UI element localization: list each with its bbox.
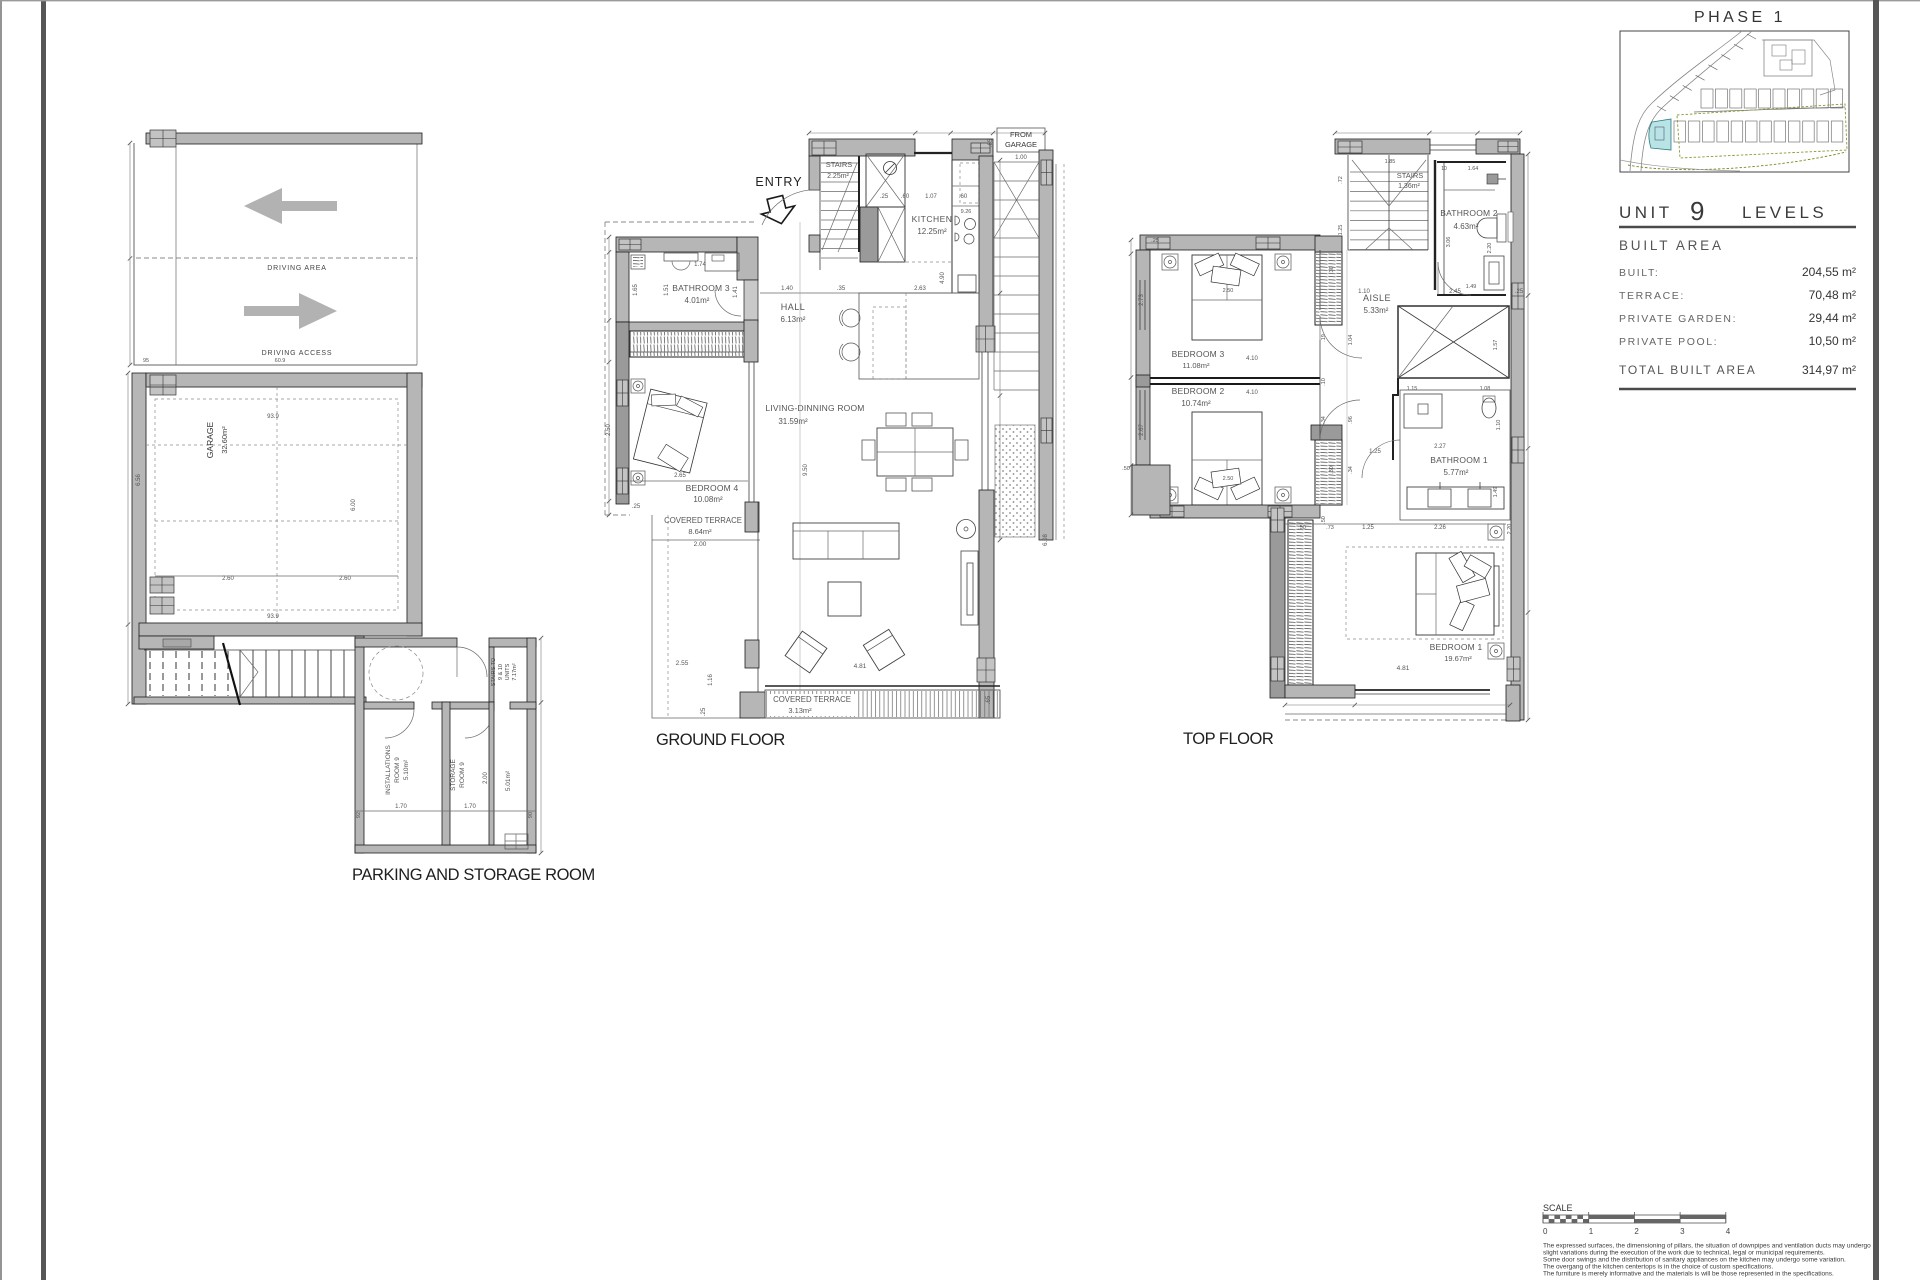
- svg-text:The overgang of the kitchen ce: The overgang of the kitchen centertops i…: [1543, 1264, 1773, 1271]
- svg-text:STAIRS: STAIRS: [826, 160, 853, 169]
- svg-text:.25: .25: [632, 504, 641, 510]
- svg-text:.34: .34: [1348, 466, 1354, 474]
- svg-text:BEDROOM 2: BEDROOM 2: [1172, 386, 1225, 396]
- svg-text:2.00: 2.00: [694, 541, 707, 548]
- svg-text:LIVING-DINNING ROOM: LIVING-DINNING ROOM: [765, 403, 864, 413]
- svg-text:1.41: 1.41: [733, 286, 739, 298]
- svg-text:314,97 m²: 314,97 m²: [1802, 363, 1856, 377]
- svg-text:1.85: 1.85: [1385, 159, 1396, 165]
- svg-text:2.60: 2.60: [339, 576, 351, 582]
- svg-text:2.65: 2.65: [674, 473, 686, 479]
- svg-text:90: 90: [528, 812, 534, 818]
- svg-text:PHASE 1: PHASE 1: [1694, 9, 1786, 26]
- svg-text:Some door swings and the distr: Some door swings and the distribution of…: [1543, 1257, 1846, 1264]
- svg-text:COVERED TERRACE: COVERED TERRACE: [773, 695, 851, 704]
- svg-text:.30: .30: [1329, 466, 1335, 474]
- svg-text:BEDROOM 1: BEDROOM 1: [1430, 642, 1483, 652]
- svg-text:1.04: 1.04: [1348, 335, 1354, 346]
- svg-text:8.64m²: 8.64m²: [688, 527, 712, 536]
- svg-text:.65: .65: [986, 695, 992, 704]
- svg-text:.25: .25: [880, 194, 889, 200]
- svg-text:5.01m²: 5.01m²: [505, 770, 512, 791]
- svg-text:10.74m²: 10.74m²: [1181, 399, 1211, 408]
- svg-text:1.49: 1.49: [1466, 284, 1477, 290]
- svg-text:GARAGE: GARAGE: [1005, 140, 1037, 149]
- svg-text:3.06: 3.06: [1446, 237, 1452, 248]
- svg-text:1.25: 1.25: [1362, 525, 1374, 531]
- svg-text:.50: .50: [1321, 516, 1327, 524]
- svg-text:DRIVING ACCESS: DRIVING ACCESS: [262, 350, 333, 357]
- svg-text:2.50: 2.50: [1223, 288, 1234, 294]
- svg-text:1.00: 1.00: [1015, 155, 1027, 161]
- svg-text:BATHROOM 1: BATHROOM 1: [1430, 455, 1488, 465]
- svg-text:PRIVATE POOL:: PRIVATE POOL:: [1619, 336, 1718, 348]
- svg-text:31.59m²: 31.59m²: [778, 417, 808, 426]
- svg-text:The expressed surfaces, the di: The expressed surfaces, the dimensioning…: [1543, 1243, 1871, 1250]
- svg-text:93.9: 93.9: [267, 614, 279, 620]
- svg-text:0: 0: [1543, 1227, 1548, 1236]
- svg-text:92: 92: [356, 812, 362, 818]
- svg-text:29,44 m²: 29,44 m²: [1809, 311, 1856, 325]
- svg-text:2.27: 2.27: [1434, 444, 1446, 450]
- svg-text:6.00: 6.00: [351, 499, 357, 511]
- svg-text:2.25m²: 2.25m²: [827, 173, 849, 180]
- svg-text:ROOM 9: ROOM 9: [459, 762, 466, 788]
- svg-text:1.70: 1.70: [464, 804, 476, 810]
- svg-text:.60: .60: [959, 194, 968, 200]
- svg-text:9.26: 9.26: [961, 209, 972, 215]
- svg-text:1.16: 1.16: [708, 674, 714, 686]
- svg-text:2.73: 2.73: [1139, 294, 1145, 306]
- svg-text:BUILT:: BUILT:: [1619, 267, 1659, 279]
- svg-text:.30: .30: [1329, 266, 1335, 274]
- svg-text:6.13m²: 6.13m²: [781, 315, 806, 324]
- svg-text:2.63: 2.63: [914, 286, 926, 292]
- svg-text:6.56: 6.56: [136, 474, 142, 486]
- svg-text:1.08: 1.08: [1480, 386, 1491, 392]
- svg-text:95: 95: [143, 358, 149, 364]
- svg-text:2.50: 2.50: [1223, 476, 1234, 482]
- svg-text:4.63m²: 4.63m²: [1454, 222, 1479, 231]
- svg-text:The furniture is merely inform: The furniture is merely informative and …: [1543, 1271, 1834, 1278]
- svg-text:1.57: 1.57: [1493, 340, 1499, 351]
- svg-text:1.65: 1.65: [633, 284, 639, 296]
- svg-text:HALL: HALL: [781, 302, 806, 312]
- svg-text:TOTAL BUILT AREA: TOTAL BUILT AREA: [1619, 363, 1757, 377]
- svg-text:93.9: 93.9: [267, 414, 279, 420]
- svg-text:1.51: 1.51: [664, 284, 670, 296]
- svg-text:GROUND FLOOR: GROUND FLOOR: [656, 731, 785, 749]
- svg-text:4: 4: [1726, 1227, 1731, 1236]
- svg-text:1.10: 1.10: [1358, 289, 1370, 295]
- svg-text:1.07: 1.07: [925, 194, 937, 200]
- svg-text:10,50 m²: 10,50 m²: [1809, 334, 1856, 348]
- svg-text:TERRACE:: TERRACE:: [1619, 290, 1685, 302]
- svg-text:.65: .65: [988, 138, 994, 147]
- svg-text:KITCHEN: KITCHEN: [912, 214, 953, 224]
- svg-text:.35: .35: [837, 286, 846, 292]
- svg-text:2.20: 2.20: [1487, 243, 1493, 254]
- svg-text:.25: .25: [1515, 289, 1524, 295]
- svg-text:BATHROOM 2: BATHROOM 2: [1440, 208, 1498, 218]
- svg-text:3.13m²: 3.13m²: [788, 706, 812, 715]
- svg-text:204,55 m²: 204,55 m²: [1802, 265, 1856, 279]
- svg-text:4.01m²: 4.01m²: [685, 296, 710, 305]
- svg-text:2.60: 2.60: [222, 576, 234, 582]
- svg-text:TOP FLOOR: TOP FLOOR: [1183, 730, 1274, 748]
- svg-text:4.10: 4.10: [1246, 356, 1258, 362]
- svg-text:2.20: 2.20: [1507, 524, 1513, 535]
- svg-text:2.26: 2.26: [1434, 525, 1446, 531]
- svg-text:6.08: 6.08: [1043, 534, 1049, 546]
- svg-text:SCALE: SCALE: [1543, 1203, 1573, 1213]
- svg-text:3: 3: [1680, 1227, 1685, 1236]
- svg-text:LEVELS: LEVELS: [1742, 203, 1827, 222]
- svg-text:ROOM 9: ROOM 9: [394, 757, 401, 783]
- svg-text:1: 1: [1589, 1227, 1594, 1236]
- svg-text:BEDROOM 3: BEDROOM 3: [1172, 349, 1225, 359]
- svg-text:5.77m²: 5.77m²: [1444, 468, 1469, 477]
- svg-text:UNIT: UNIT: [1619, 203, 1673, 222]
- svg-text:4.81: 4.81: [1397, 665, 1410, 672]
- svg-text:1.40: 1.40: [781, 286, 793, 292]
- svg-text:.25: .25: [1151, 238, 1159, 244]
- svg-text:INSTALLATIONS: INSTALLATIONS: [385, 745, 392, 795]
- svg-text:.96: .96: [1348, 416, 1354, 424]
- svg-text:1.74: 1.74: [694, 262, 706, 268]
- svg-text:9 & 10: 9 & 10: [498, 664, 504, 680]
- svg-text:.50: .50: [1298, 525, 1306, 531]
- svg-text:BEDROOM 4: BEDROOM 4: [686, 483, 739, 493]
- svg-text:.25: .25: [701, 707, 707, 716]
- svg-text:UNITS: UNITS: [505, 663, 511, 680]
- svg-text:5.10m²: 5.10m²: [403, 759, 410, 780]
- svg-text:4.81: 4.81: [854, 663, 867, 670]
- svg-text:32.60m²: 32.60m²: [220, 426, 229, 454]
- svg-text:10.08m²: 10.08m²: [693, 495, 723, 504]
- svg-text:2.00: 2.00: [483, 772, 489, 784]
- svg-text:1.25: 1.25: [1338, 225, 1344, 236]
- svg-text:19.67m²: 19.67m²: [1444, 654, 1472, 663]
- svg-text:7.17m²: 7.17m²: [512, 663, 518, 680]
- svg-text:1.49: 1.49: [1493, 487, 1499, 498]
- svg-text:2: 2: [1634, 1227, 1639, 1236]
- svg-text:STAIRS: STAIRS: [1397, 171, 1424, 180]
- svg-text:BATHROOM 3: BATHROOM 3: [672, 283, 730, 293]
- svg-text:4.90: 4.90: [940, 272, 946, 284]
- svg-text:4.10: 4.10: [1246, 390, 1258, 396]
- svg-text:10: 10: [1441, 166, 1447, 172]
- svg-text:11.08m²: 11.08m²: [1183, 361, 1210, 370]
- svg-text:.72: .72: [1338, 176, 1344, 184]
- svg-text:.60: .60: [901, 194, 910, 200]
- svg-text:1.15: 1.15: [1407, 386, 1418, 392]
- svg-text:.73: .73: [1326, 525, 1334, 531]
- svg-text:DRIVING AREA: DRIVING AREA: [267, 265, 326, 272]
- svg-text:ENTRY: ENTRY: [755, 175, 802, 189]
- svg-text:9: 9: [1690, 196, 1704, 226]
- svg-text:1.36m²: 1.36m²: [1398, 183, 1420, 190]
- svg-text:70,48 m²: 70,48 m²: [1809, 288, 1856, 302]
- svg-text:60.9: 60.9: [275, 358, 286, 364]
- svg-text:.50: .50: [1122, 466, 1130, 472]
- svg-text:PRIVATE GARDEN:: PRIVATE GARDEN:: [1619, 313, 1737, 325]
- svg-text:.10: .10: [1321, 378, 1327, 386]
- svg-text:5.33m²: 5.33m²: [1364, 306, 1389, 315]
- svg-text:STAIRS TO: STAIRS TO: [491, 657, 497, 686]
- svg-text:2.55: 2.55: [676, 660, 689, 667]
- svg-text:GARAGE: GARAGE: [205, 421, 215, 458]
- svg-text:FROM: FROM: [1010, 130, 1032, 139]
- svg-text:COVERED TERRACE: COVERED TERRACE: [664, 516, 742, 525]
- svg-text:1.10: 1.10: [1496, 420, 1502, 431]
- svg-text:slight variations during the e: slight variations during the execution o…: [1543, 1250, 1825, 1257]
- svg-text:1.70: 1.70: [395, 804, 407, 810]
- svg-text:BUILT AREA: BUILT AREA: [1619, 238, 1724, 253]
- svg-text:PARKING AND STORAGE ROOM: PARKING AND STORAGE ROOM: [352, 866, 595, 884]
- svg-text:1.64: 1.64: [1468, 166, 1479, 172]
- svg-text:STORAGE: STORAGE: [450, 759, 457, 791]
- svg-text:1.25: 1.25: [1369, 449, 1381, 455]
- svg-text:2.45: 2.45: [1449, 289, 1461, 295]
- svg-text:9.50: 9.50: [803, 464, 809, 476]
- svg-text:12.25m²: 12.25m²: [917, 227, 947, 236]
- svg-text:2.67: 2.67: [1139, 424, 1145, 436]
